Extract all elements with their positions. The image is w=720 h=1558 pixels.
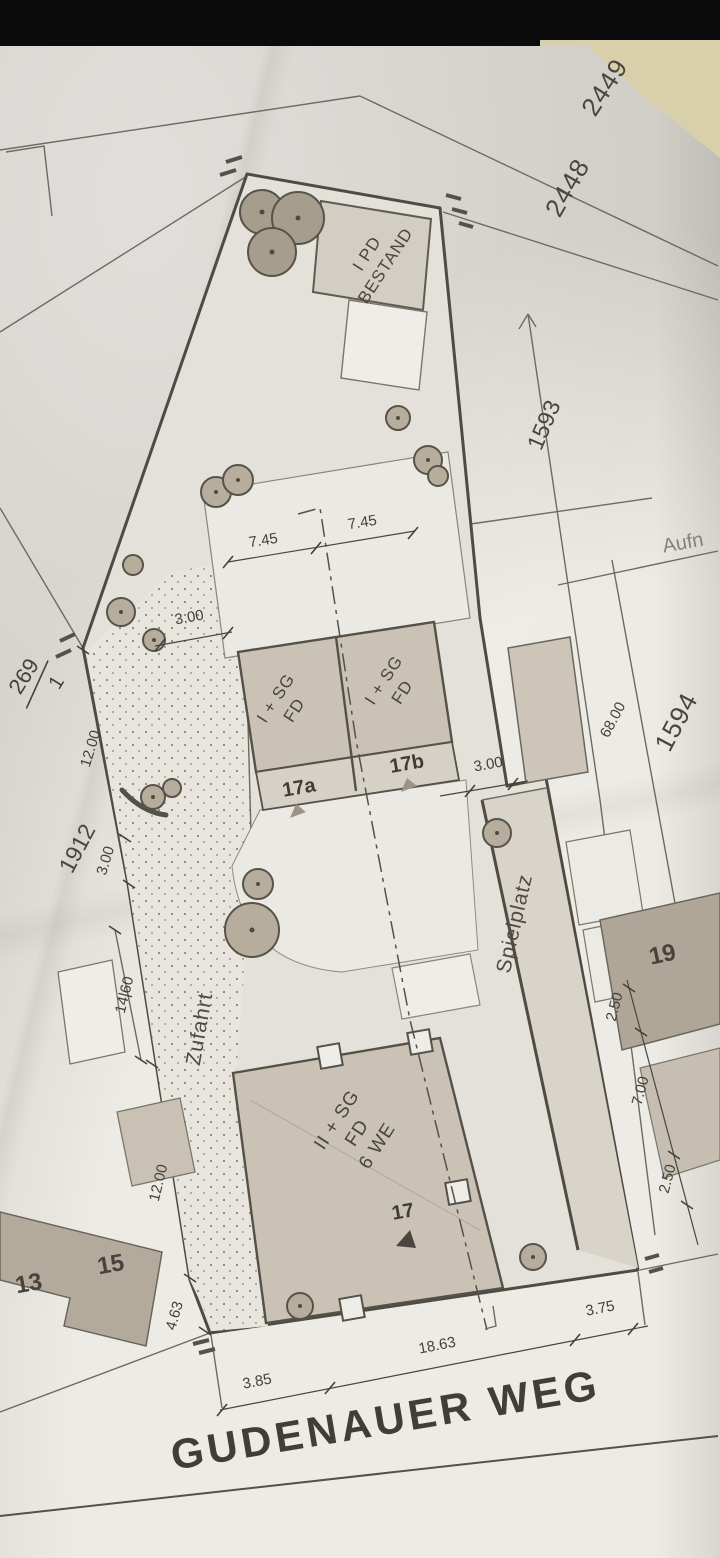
margin-note-label: Aufn	[661, 529, 705, 558]
site-plan-drawing: 7.45 7.45 3.00 3.00 12.00 3.00 14|60 12.…	[0, 0, 720, 1558]
house-number-17: 17	[390, 1199, 416, 1225]
parcel-number-1593: 1593	[522, 396, 566, 453]
house-number-13: 13	[13, 1268, 44, 1299]
dim-3.85: 3.85	[241, 1370, 273, 1392]
dim-3.75: 3.75	[584, 1297, 616, 1319]
street-name: GUDENAUER WEG	[167, 1361, 603, 1479]
svg-text:269: 269	[3, 654, 44, 698]
parcel-number-269-1: 269 1	[0, 647, 73, 720]
house-number-15: 15	[95, 1249, 126, 1280]
svg-text:1: 1	[44, 672, 69, 693]
parcel-number-2449: 2449	[575, 53, 634, 121]
dim-4.63: 4.63	[162, 1299, 186, 1332]
dim-12.00-upper: 12.00	[77, 728, 104, 769]
parcel-number-2448: 2448	[539, 153, 596, 222]
dim-68.00: 68.00	[597, 699, 630, 740]
building-19	[600, 893, 720, 1050]
house-number-19: 19	[647, 939, 679, 971]
dim-2.50-lower: 2.50	[656, 1163, 680, 1196]
parcel-number-1594: 1594	[648, 687, 704, 756]
dim-18.63: 18.63	[417, 1334, 457, 1358]
dim-14-60: 14|60	[112, 975, 138, 1015]
parcel-number-1912: 1912	[53, 820, 100, 877]
dim-3.00-boundary: 3.00	[93, 844, 118, 877]
